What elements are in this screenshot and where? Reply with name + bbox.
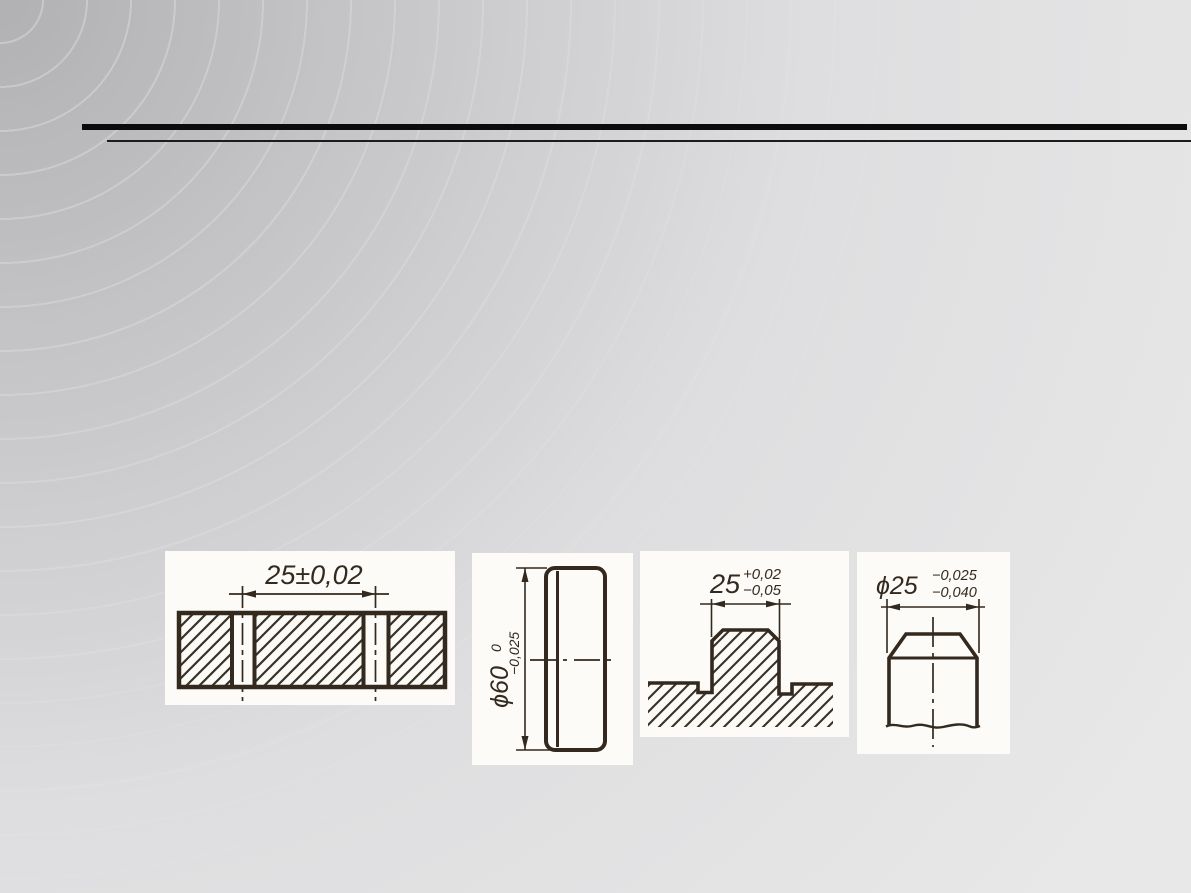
hatched-section-right [390, 615, 443, 685]
hatched-base [648, 630, 833, 727]
extension-ticks [516, 568, 558, 750]
disc-outline [546, 568, 605, 750]
dimension-label: ϕ25 [876, 572, 918, 600]
tolerance-upper: 0 [488, 644, 504, 652]
technical-drawing-3: 25 +0,02 −0,05 [640, 551, 849, 737]
tolerance-upper: +0,02 [743, 566, 782, 583]
tolerance-lower: −0,05 [743, 582, 782, 599]
tolerance-lower: −0,025 [506, 632, 522, 675]
figure-disc-side-view: ϕ60 0 −0,025 [472, 553, 633, 765]
tolerance-lower: −0,040 [932, 585, 977, 601]
hatched-section-left [181, 615, 231, 685]
technical-drawing-4: ϕ25 −0,025 −0,040 [857, 552, 1010, 754]
figure-shaft-end-view: ϕ25 −0,025 −0,040 [857, 552, 1010, 754]
dimension-label: 25±0,02 [264, 560, 362, 590]
slide-canvas: 25±0,02 ϕ60 0 −0,025 [0, 0, 1191, 893]
tolerance-upper: −0,025 [932, 568, 978, 584]
hatched-section-middle [255, 615, 362, 685]
figure-boss-profile: 25 +0,02 −0,05 [640, 551, 849, 737]
top-rule-thick [82, 124, 1187, 130]
rotated-dimension-label: ϕ60 0 −0,025 [486, 632, 522, 708]
dimension-label: 25 [709, 569, 741, 599]
top-rule-thin [107, 140, 1191, 142]
technical-drawing-1: 25±0,02 [165, 551, 455, 705]
technical-drawing-2: ϕ60 0 −0,025 [472, 553, 633, 765]
figure-slotted-shaft-section: 25±0,02 [165, 551, 455, 705]
